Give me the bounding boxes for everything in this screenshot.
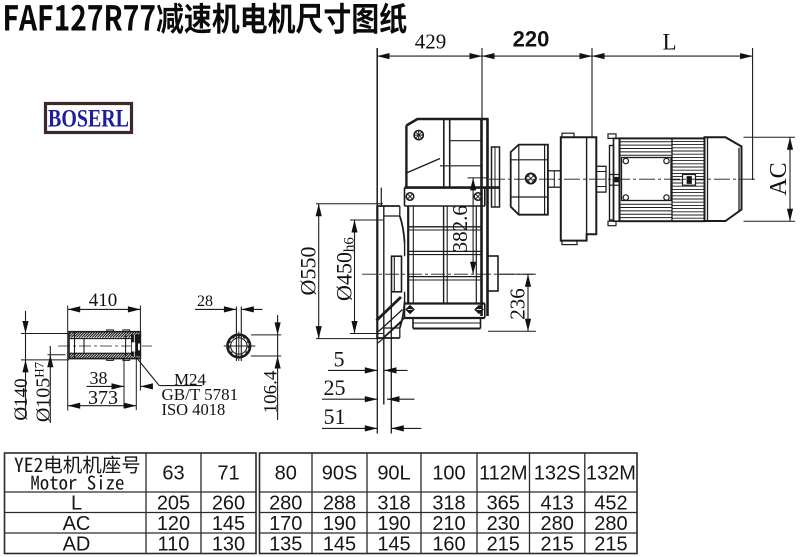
svg-text:25: 25 xyxy=(324,375,346,400)
svg-text:373: 373 xyxy=(88,387,118,409)
svg-text:160: 160 xyxy=(432,534,465,556)
svg-text:260: 260 xyxy=(212,493,245,515)
svg-text:215: 215 xyxy=(487,534,520,556)
svg-text:AD: AD xyxy=(63,534,91,556)
svg-text:145: 145 xyxy=(377,534,410,556)
svg-text:110: 110 xyxy=(158,534,190,556)
svg-text:132S: 132S xyxy=(534,463,581,485)
svg-text:Ø550: Ø550 xyxy=(296,247,321,296)
svg-text:130: 130 xyxy=(212,534,245,556)
svg-text:100: 100 xyxy=(432,463,465,485)
svg-text:205: 205 xyxy=(157,493,190,515)
svg-text:80: 80 xyxy=(275,463,297,485)
svg-text:280: 280 xyxy=(594,513,627,535)
svg-text:90S: 90S xyxy=(322,463,358,485)
svg-text:318: 318 xyxy=(377,493,410,515)
svg-text:38: 38 xyxy=(90,368,108,388)
svg-text:170: 170 xyxy=(269,513,302,535)
svg-text:90L: 90L xyxy=(377,463,410,485)
svg-text:135: 135 xyxy=(269,534,302,556)
svg-text:132M: 132M xyxy=(586,463,636,485)
svg-text:L: L xyxy=(71,493,82,515)
svg-text:BOSERL: BOSERL xyxy=(48,106,129,133)
svg-text:63: 63 xyxy=(162,463,184,485)
svg-text:L: L xyxy=(662,30,676,55)
svg-text:71: 71 xyxy=(217,463,239,485)
svg-text:318: 318 xyxy=(432,493,465,515)
svg-text:AC: AC xyxy=(63,513,91,535)
svg-text:365: 365 xyxy=(487,493,520,515)
svg-text:AC: AC xyxy=(766,162,792,195)
svg-text:410: 410 xyxy=(89,290,118,311)
svg-text:Ø140: Ø140 xyxy=(11,378,32,420)
svg-text:145: 145 xyxy=(323,534,356,556)
svg-text:220: 220 xyxy=(513,27,550,52)
svg-text:280: 280 xyxy=(540,513,573,535)
svg-text:28: 28 xyxy=(197,293,213,310)
svg-text:215: 215 xyxy=(540,534,573,556)
svg-text:51: 51 xyxy=(324,404,346,429)
svg-text:230: 230 xyxy=(487,513,520,535)
svg-text:236: 236 xyxy=(506,288,530,320)
svg-text:413: 413 xyxy=(540,493,573,515)
svg-text:215: 215 xyxy=(594,534,627,556)
svg-text:120: 120 xyxy=(157,513,190,535)
svg-text:429: 429 xyxy=(415,30,447,54)
svg-text:210: 210 xyxy=(432,513,465,535)
svg-text:106.4: 106.4 xyxy=(261,370,282,413)
svg-text:288: 288 xyxy=(323,493,356,515)
svg-text:382.6: 382.6 xyxy=(448,205,472,252)
svg-text:190: 190 xyxy=(323,513,356,535)
svg-text:112M: 112M xyxy=(479,463,528,485)
svg-text:145: 145 xyxy=(212,513,245,535)
svg-text:5: 5 xyxy=(334,347,345,372)
svg-text:280: 280 xyxy=(269,493,302,515)
svg-text:ISO 4018: ISO 4018 xyxy=(162,400,226,419)
svg-text:452: 452 xyxy=(594,493,627,515)
svg-text:190: 190 xyxy=(377,513,410,535)
